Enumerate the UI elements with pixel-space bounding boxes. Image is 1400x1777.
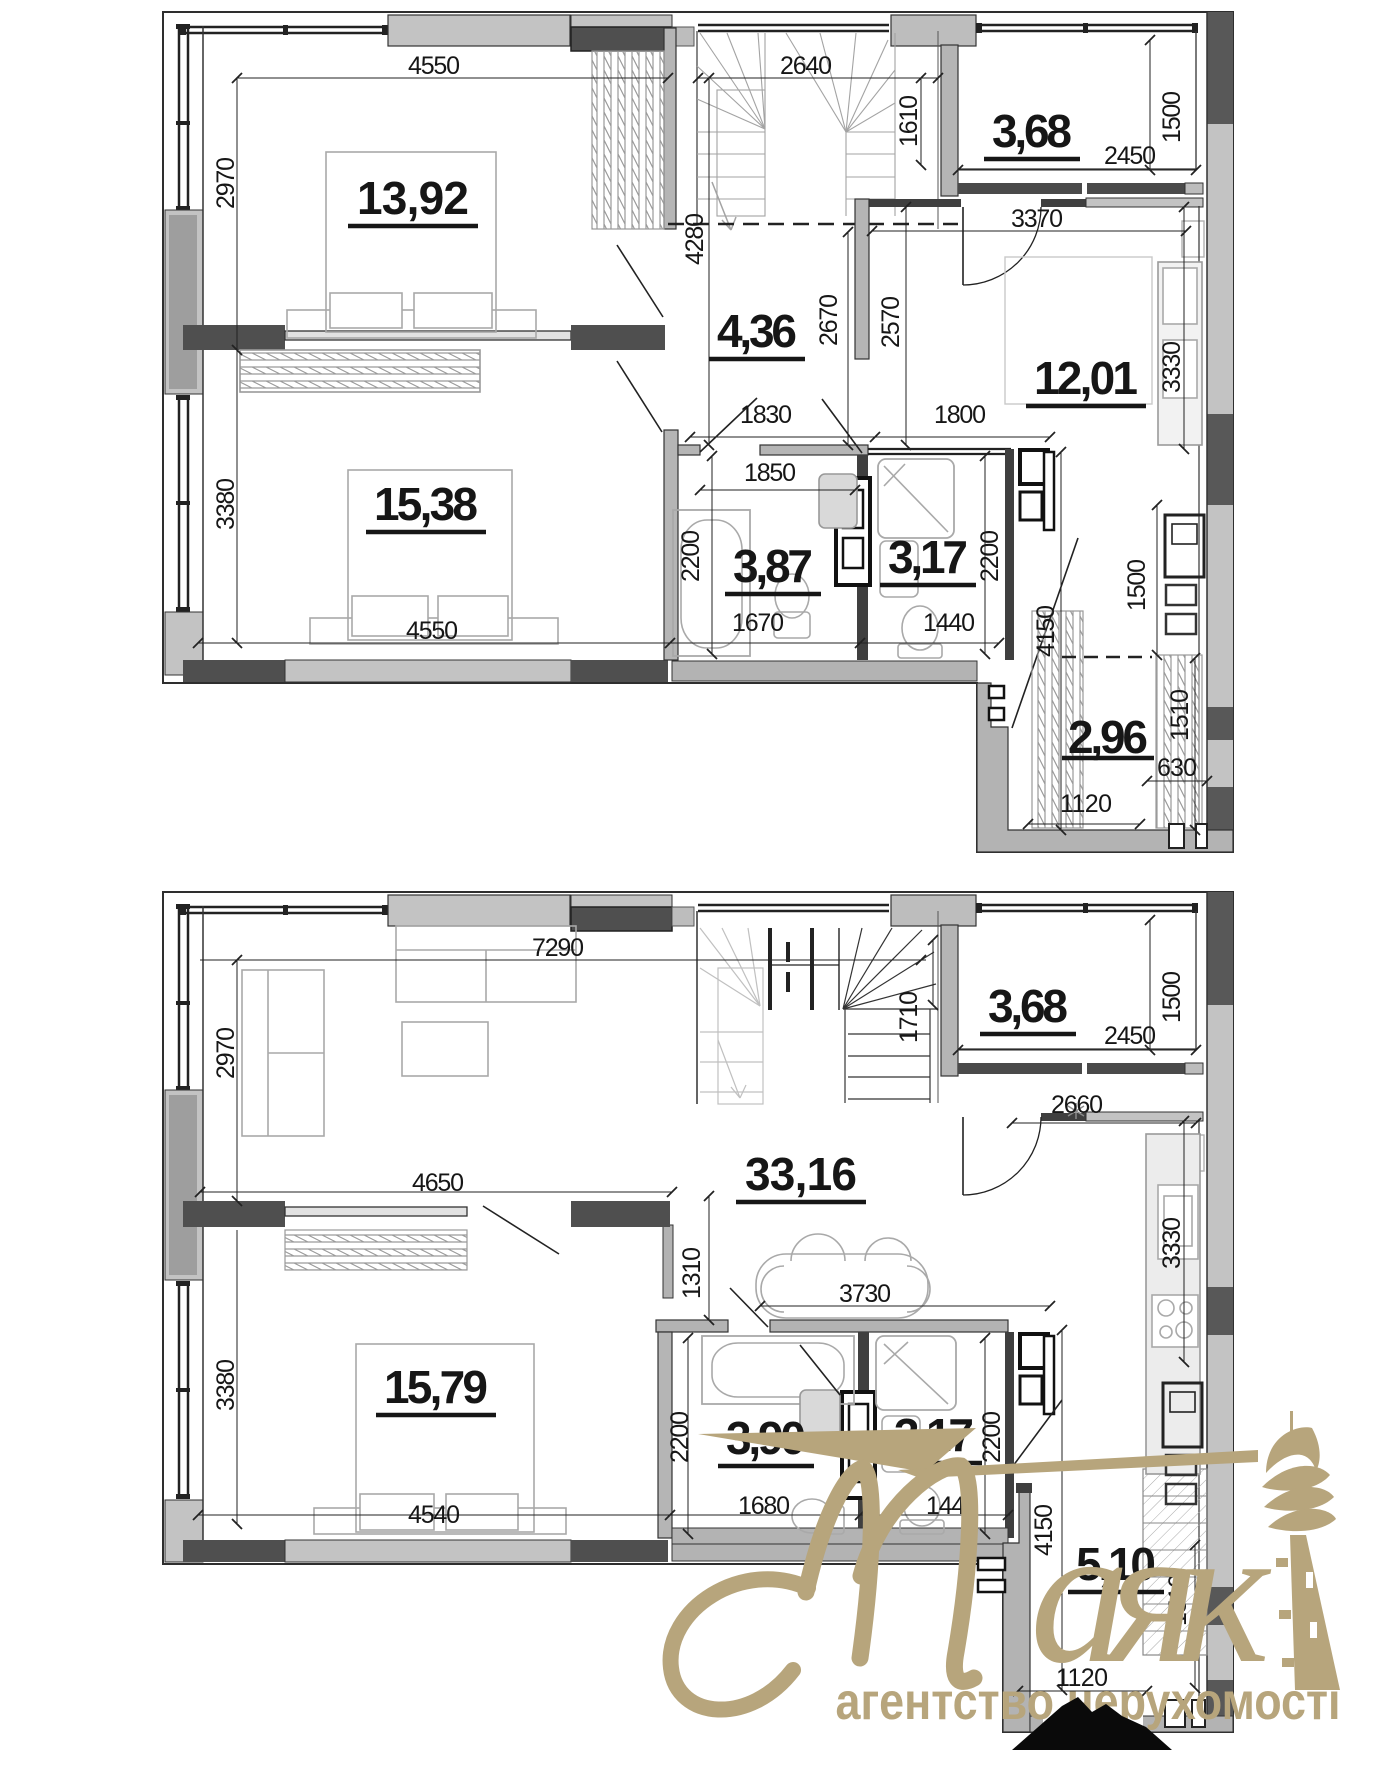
- svg-text:3,17: 3,17: [888, 531, 968, 583]
- svg-text:4650: 4650: [412, 1169, 464, 1197]
- svg-text:2970: 2970: [212, 1027, 240, 1079]
- svg-text:2200: 2200: [666, 1411, 694, 1463]
- svg-text:2570: 2570: [877, 296, 905, 348]
- svg-text:3,87: 3,87: [733, 540, 813, 592]
- svg-text:1440: 1440: [923, 609, 975, 637]
- svg-text:7290: 7290: [532, 934, 584, 962]
- svg-text:4550: 4550: [408, 52, 460, 80]
- svg-text:3370: 3370: [1011, 205, 1063, 233]
- svg-text:15,79: 15,79: [384, 1361, 488, 1413]
- svg-text:1510: 1510: [1166, 689, 1194, 741]
- svg-text:2450: 2450: [1104, 142, 1156, 170]
- svg-text:1500: 1500: [1158, 91, 1186, 143]
- svg-text:1670: 1670: [732, 609, 784, 637]
- svg-text:2670: 2670: [815, 294, 843, 346]
- svg-text:2,96: 2,96: [1068, 711, 1148, 763]
- svg-text:12,01: 12,01: [1034, 352, 1138, 404]
- svg-text:4550: 4550: [406, 617, 458, 645]
- svg-text:1310: 1310: [678, 1247, 706, 1299]
- svg-text:630: 630: [1157, 754, 1197, 782]
- svg-text:2450: 2450: [1104, 1022, 1156, 1050]
- svg-text:2200: 2200: [976, 530, 1004, 582]
- svg-text:1830: 1830: [740, 401, 792, 429]
- svg-text:3380: 3380: [212, 478, 240, 530]
- svg-text:3,68: 3,68: [992, 105, 1072, 157]
- svg-text:4280: 4280: [681, 213, 709, 265]
- svg-text:4150: 4150: [1032, 605, 1060, 657]
- svg-text:аяк: аяк: [1030, 1484, 1271, 1705]
- svg-text:1850: 1850: [744, 459, 796, 487]
- svg-text:2200: 2200: [677, 530, 705, 582]
- svg-text:1120: 1120: [1060, 790, 1112, 818]
- svg-text:13,92: 13,92: [357, 172, 469, 224]
- svg-text:2660: 2660: [1051, 1091, 1103, 1119]
- svg-text:4540: 4540: [408, 1501, 460, 1529]
- svg-text:2970: 2970: [212, 157, 240, 209]
- svg-text:2640: 2640: [780, 52, 832, 80]
- svg-text:1710: 1710: [895, 991, 923, 1043]
- svg-text:1500: 1500: [1123, 559, 1151, 611]
- svg-text:4,36: 4,36: [717, 305, 797, 357]
- svg-text:1800: 1800: [934, 401, 986, 429]
- svg-text:1610: 1610: [895, 95, 923, 147]
- svg-text:2200: 2200: [978, 1411, 1006, 1463]
- svg-text:15,38: 15,38: [374, 478, 478, 530]
- svg-text:3330: 3330: [1158, 1217, 1186, 1269]
- svg-text:3380: 3380: [212, 1359, 240, 1411]
- svg-text:3730: 3730: [839, 1280, 891, 1308]
- svg-text:1500: 1500: [1158, 971, 1186, 1023]
- svg-text:3,68: 3,68: [988, 980, 1068, 1032]
- svg-text:3330: 3330: [1158, 341, 1186, 393]
- svg-text:1680: 1680: [738, 1492, 790, 1520]
- svg-text:33,16: 33,16: [745, 1148, 857, 1200]
